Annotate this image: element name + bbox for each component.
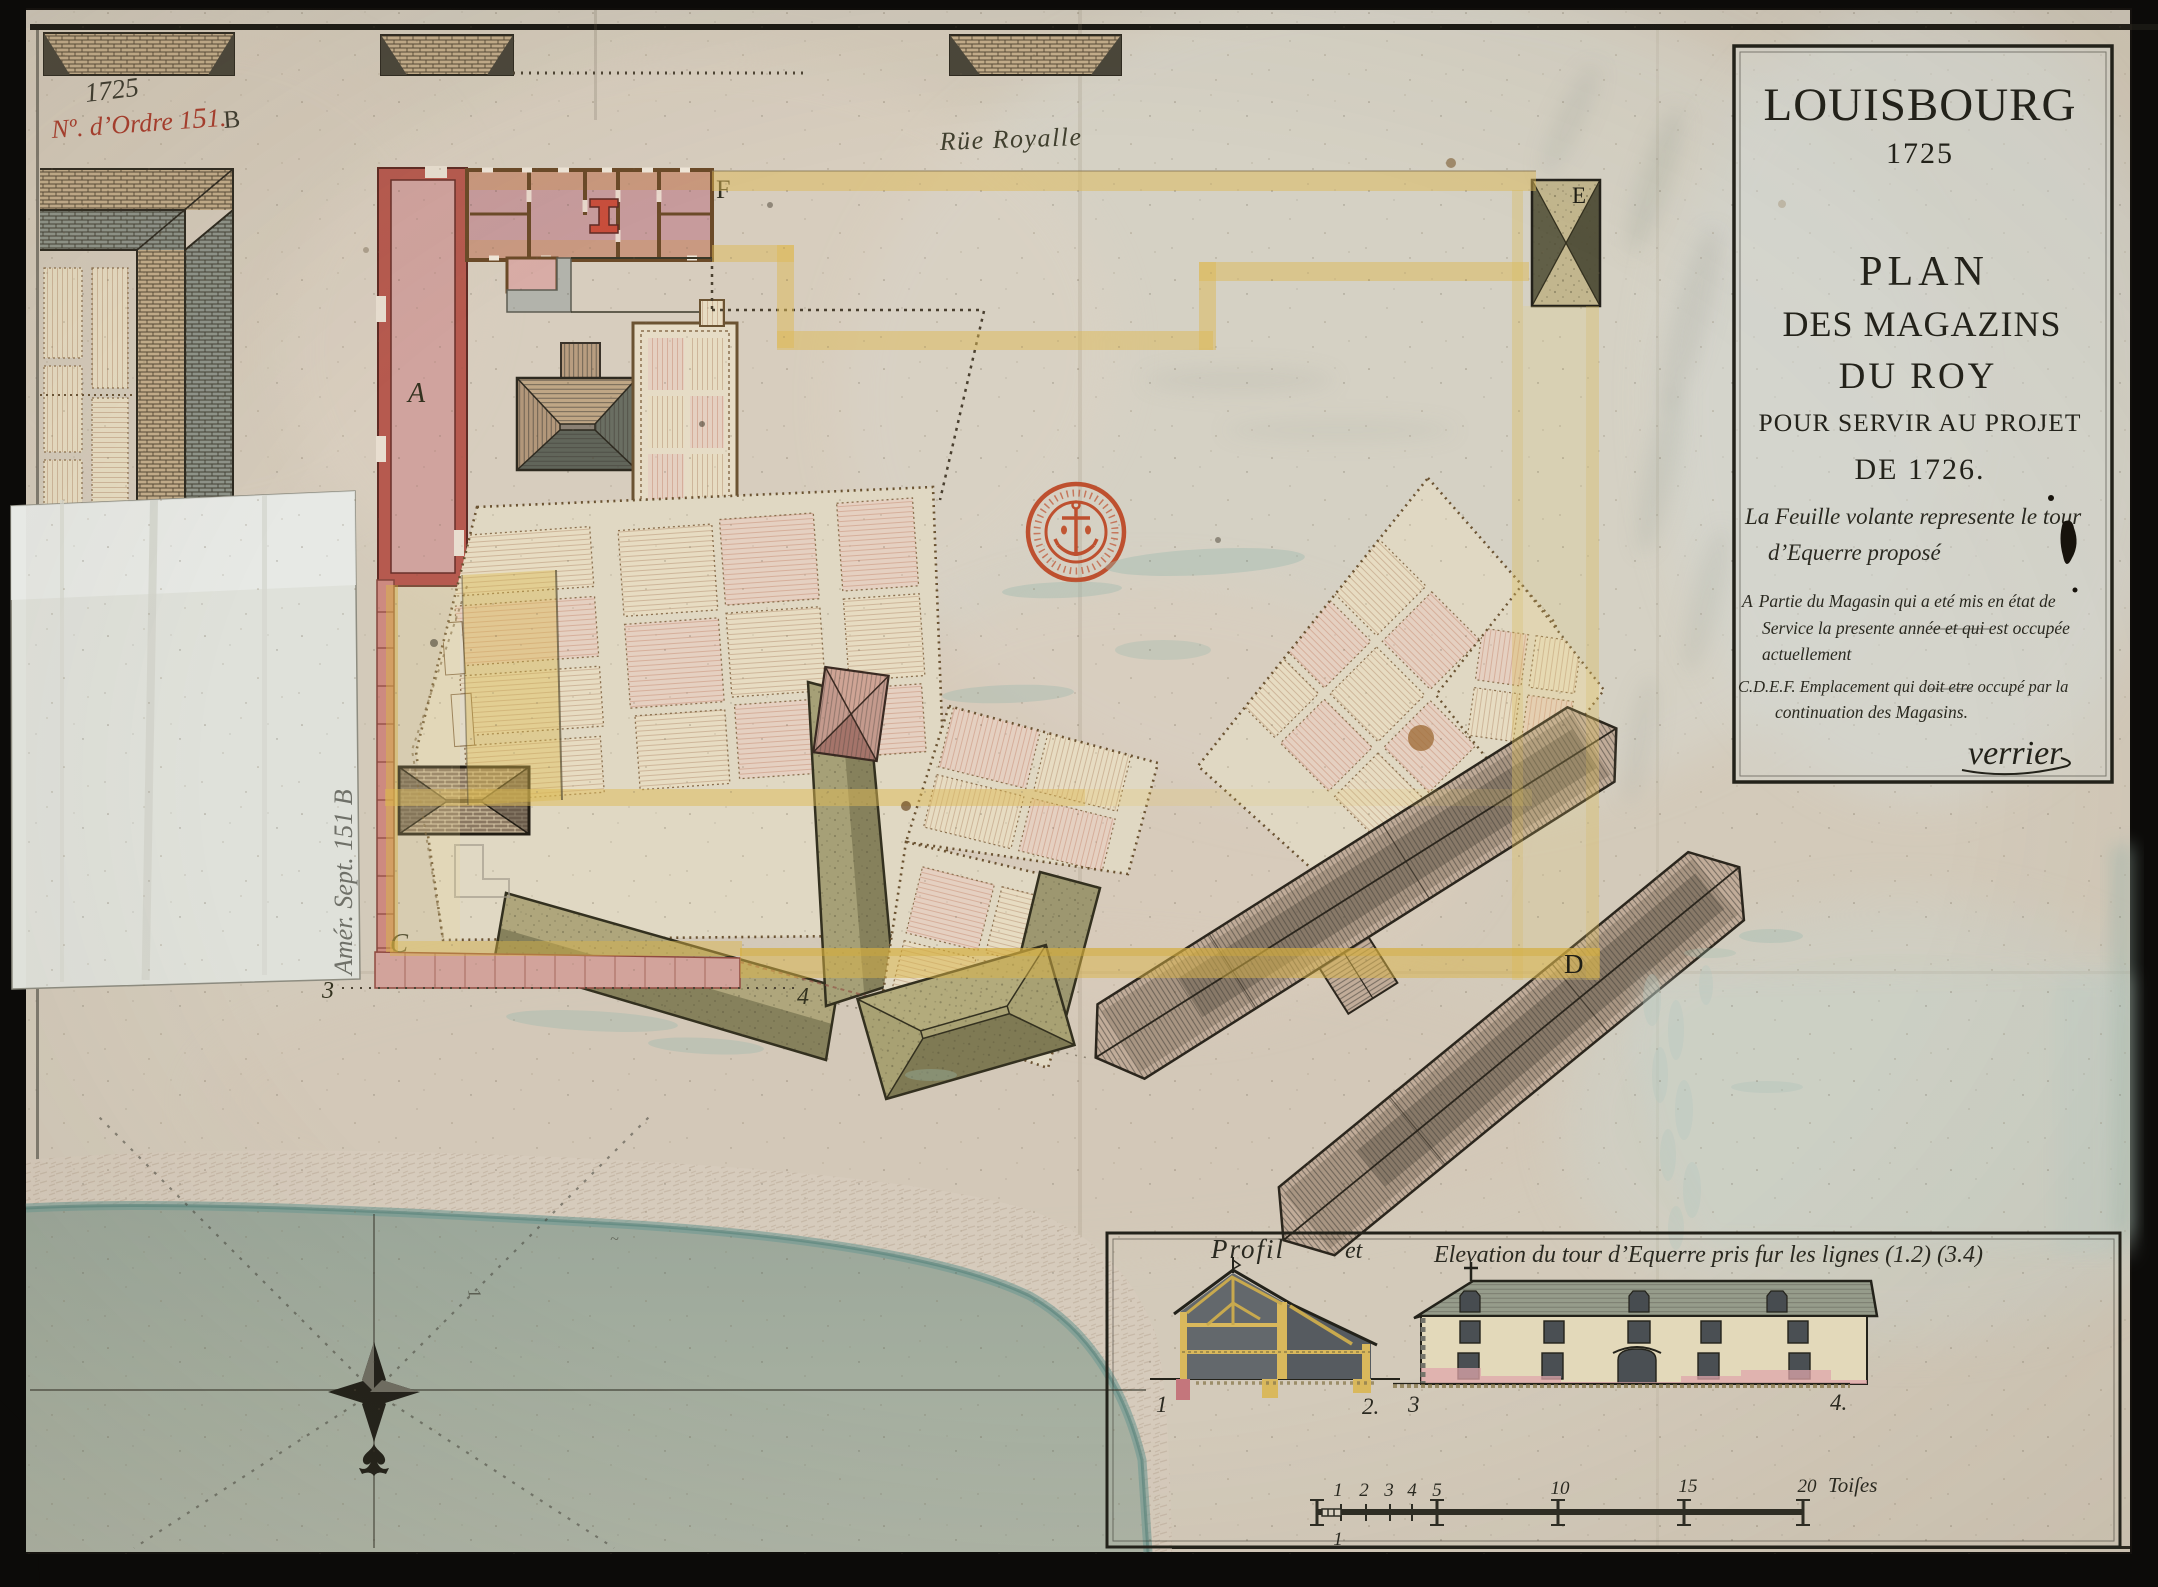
svg-text:POUR SERVIR AU PROJET: POUR SERVIR AU PROJET (1759, 408, 2082, 437)
svg-text:Profil: Profil (1210, 1234, 1285, 1264)
svg-text:Elevation du tour d’Equerre pr: Elevation du tour d’Equerre pris fur les… (1433, 1242, 1983, 1268)
svg-text:10: 10 (1551, 1478, 1571, 1499)
svg-text:d’Equerre proposé: d’Equerre proposé (1768, 540, 1942, 565)
svg-text:Service la presente année et q: Service la presente année et qui est occ… (1762, 618, 2070, 638)
svg-text:actuellement: actuellement (1762, 644, 1853, 664)
svg-text:continuation des Magasins.: continuation des Magasins. (1775, 702, 1968, 722)
svg-text:et: et (1345, 1238, 1364, 1264)
svg-text:3: 3 (1407, 1392, 1420, 1417)
svg-text:4: 4 (1407, 1480, 1417, 1501)
svg-text:APartie du Magasin qui a eté m: APartie du Magasin qui a eté mis en état… (1741, 591, 2056, 611)
svg-text:DES MAGAZINS: DES MAGAZINS (1782, 304, 2061, 344)
svg-text:2: 2 (1359, 1480, 1369, 1501)
svg-text:verrier: verrier (1968, 735, 2063, 772)
svg-text:1: 1 (1156, 1392, 1168, 1417)
svg-text:1725: 1725 (1886, 137, 1954, 170)
svg-text:PLAN: PLAN (1859, 249, 1989, 295)
svg-text:DE 1726.: DE 1726. (1855, 453, 1986, 486)
svg-text:20: 20 (1798, 1476, 1818, 1497)
svg-text:15: 15 (1679, 1476, 1698, 1497)
svg-text:LOUISBOURG: LOUISBOURG (1764, 79, 2077, 131)
svg-text:1: 1 (1333, 1529, 1343, 1550)
svg-text:DU ROY: DU ROY (1839, 356, 1998, 397)
svg-text:1: 1 (1333, 1480, 1343, 1501)
svg-text:2.: 2. (1362, 1394, 1379, 1419)
svg-text:Toiſes: Toiſes (1828, 1473, 1877, 1497)
svg-text:3: 3 (1383, 1480, 1394, 1501)
svg-text:C.D.E.F. Emplacement qui doit: C.D.E.F. Emplacement qui doit etre occup… (1738, 677, 2068, 696)
svg-text:5: 5 (1432, 1480, 1442, 1501)
svg-text:La Feuille volante represente: La Feuille volante represente le tour (1744, 504, 2082, 529)
svg-text:4.: 4. (1830, 1390, 1847, 1415)
